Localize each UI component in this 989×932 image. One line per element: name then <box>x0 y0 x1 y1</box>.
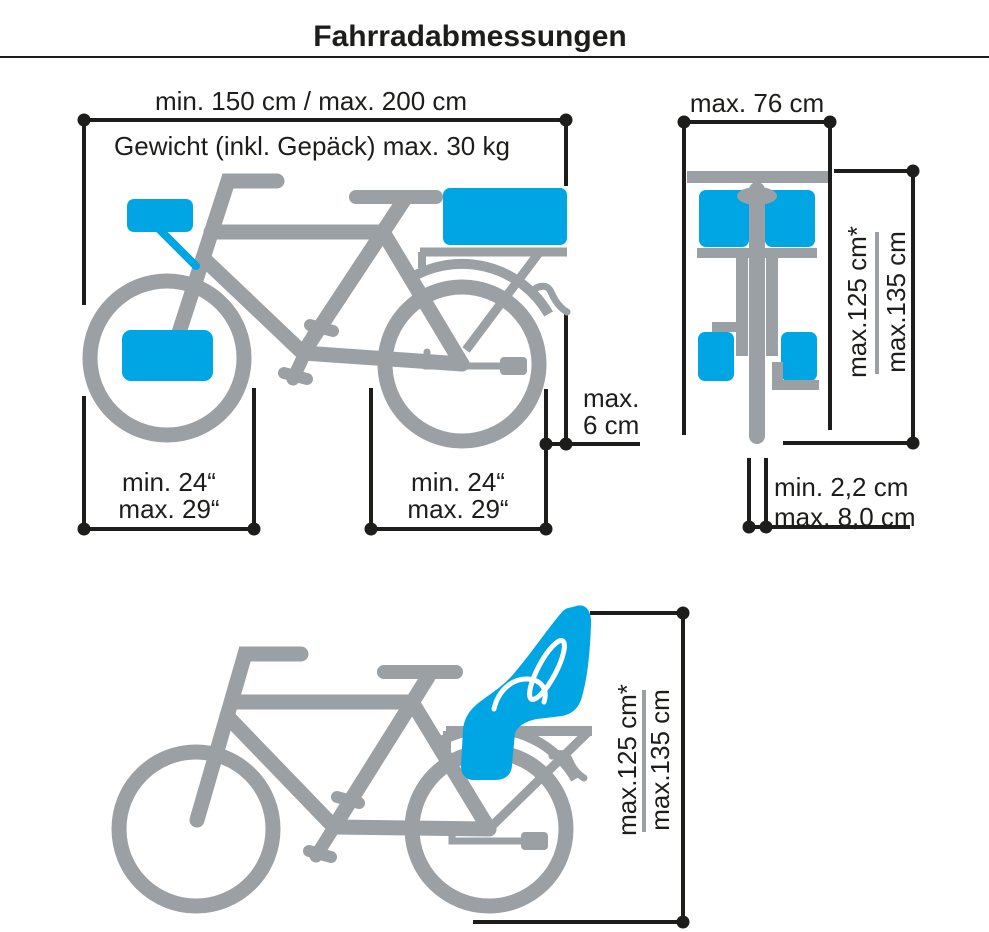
dimension-dot <box>248 523 261 536</box>
bicycle-front-view-illustration <box>687 171 828 436</box>
fork-leg-left <box>736 258 748 356</box>
handlebar-bag <box>127 199 193 232</box>
front-wheel-label-line1: min. 24“ <box>122 467 216 497</box>
front-wheel <box>119 752 273 906</box>
dimension-dot <box>78 523 91 536</box>
seat-height-label-line1: max.125 cm* <box>612 684 642 836</box>
dimension-dot <box>678 116 691 129</box>
dimension-dot <box>560 114 573 127</box>
dimension-dot <box>78 114 91 127</box>
front-rack-platform <box>697 248 817 258</box>
diagram-canvas: Fahrradabmessungen <box>0 0 989 932</box>
rear-wheel-label-line2: max. 29“ <box>407 494 508 524</box>
dimension-dot <box>677 607 690 620</box>
rear-rack-box <box>443 188 567 245</box>
dimension-dot <box>677 916 690 929</box>
lowrider-frame-horizontal <box>772 380 819 390</box>
page-title: Fahrradabmessungen <box>313 20 626 53</box>
front-wheel-label-line2: max. 29“ <box>118 494 219 524</box>
dimension-dot <box>560 438 573 451</box>
rear-overhang-label-line2: 6 cm <box>583 410 639 440</box>
height-label-line1: max.125 cm* <box>842 226 872 378</box>
tire-width-label-line1: min. 2,2 cm <box>774 472 908 502</box>
bicycle-child-seat-illustration <box>119 605 592 906</box>
height-label-line2: max.135 cm <box>881 231 911 373</box>
pedal-upper <box>310 325 333 331</box>
dimension-dot <box>760 521 773 534</box>
lowrider-pannier-right <box>781 332 817 381</box>
stem-knob <box>737 187 777 205</box>
dimension-dot <box>540 438 553 451</box>
lowrider-support <box>712 322 742 332</box>
rear-overhang-label-line1: max. <box>583 383 639 413</box>
weight-label: Gewicht (inkl. Gepäck) max. 30 kg <box>114 131 510 161</box>
front-pannier <box>122 330 213 381</box>
width-label: max. 76 cm <box>690 88 824 118</box>
dimension-dot <box>907 437 920 450</box>
bicycle-dimensions-diagram: Fahrradabmessungen <box>0 0 989 932</box>
dimension-dot <box>907 165 920 178</box>
seat-height-label-line2: max.135 cm <box>645 689 675 831</box>
chain-stay <box>334 827 489 829</box>
chain-stay <box>303 353 462 364</box>
fork-leg-right <box>766 258 778 356</box>
pedal-lower <box>284 373 307 379</box>
pedal-upper <box>337 797 359 803</box>
bag-strap <box>158 228 196 266</box>
dimension-dot <box>365 523 378 536</box>
dimension-dot <box>824 116 837 129</box>
bicycle-side-view-illustration <box>90 181 567 441</box>
pedal-lower <box>309 851 331 857</box>
pump-tip <box>521 832 548 850</box>
pump-tip <box>500 357 527 375</box>
overall-length-label: min. 150 cm / max. 200 cm <box>155 86 467 116</box>
rear-wheel-label-line1: min. 24“ <box>411 467 505 497</box>
tire-width-label-line2: max. 8,0 cm <box>774 502 916 532</box>
dimension-dot <box>743 521 756 534</box>
dimension-dot <box>540 523 553 536</box>
handlebar-front <box>687 171 828 183</box>
lowrider-pannier-left <box>698 332 734 381</box>
